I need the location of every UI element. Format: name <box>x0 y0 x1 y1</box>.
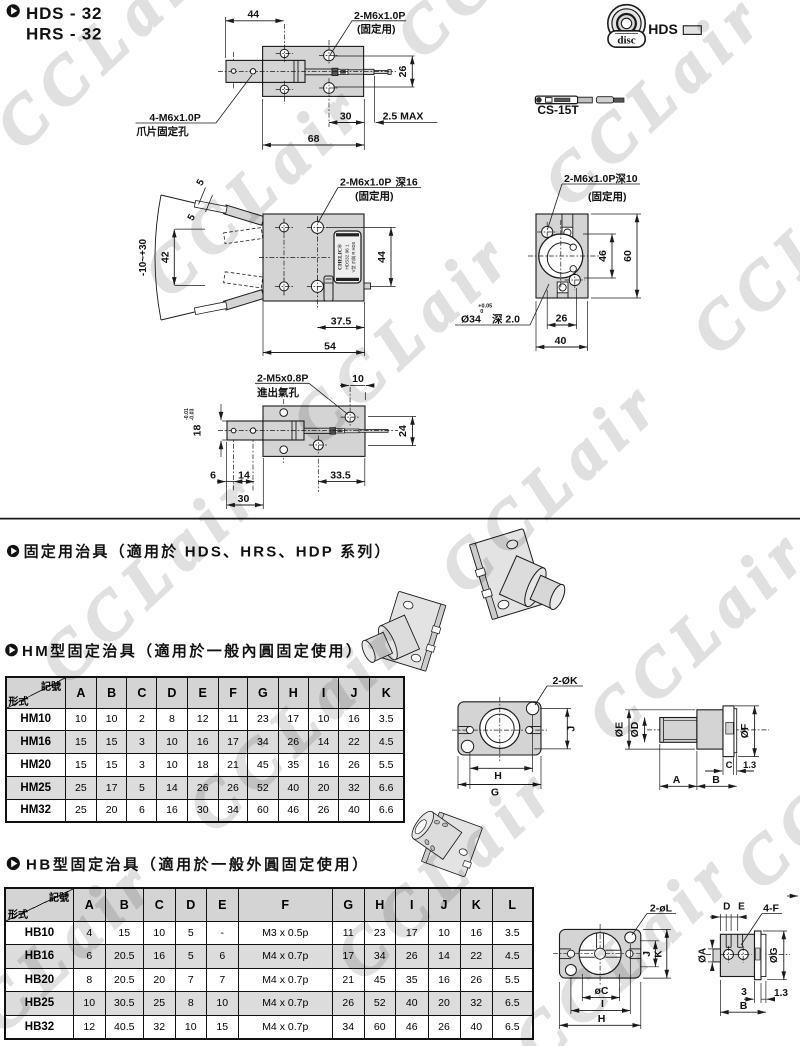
svg-text:(固定用): (固定用) <box>588 190 627 203</box>
svg-text:Ø34: Ø34 <box>461 314 481 326</box>
svg-text:B: B <box>740 1000 748 1012</box>
svg-text:4-M6x1.0P: 4-M6x1.0P <box>149 112 200 124</box>
svg-text:44: 44 <box>376 251 388 263</box>
svg-text:A: A <box>673 774 681 786</box>
svg-text:HM型固定治具（適用於一般內圓固定使用）: HM型固定治具（適用於一般內圓固定使用） <box>22 642 363 660</box>
svg-text:30: 30 <box>340 110 352 122</box>
svg-text:V型 爪與 R HDS: V型 爪與 R HDS <box>350 241 357 272</box>
svg-text:I: I <box>601 998 604 1010</box>
svg-text:14: 14 <box>238 469 250 481</box>
svg-text:33.5: 33.5 <box>330 469 351 481</box>
svg-text:HDS32 96 1: HDS32 96 1 <box>345 244 350 269</box>
svg-text:HB型固定治具（適用於一般外圓固定使用）: HB型固定治具（適用於一般外圓固定使用） <box>26 856 370 874</box>
svg-text:44: 44 <box>247 9 259 21</box>
svg-text:-0.03: -0.03 <box>190 408 196 420</box>
svg-text:øC: øC <box>595 985 609 997</box>
svg-text:42: 42 <box>160 251 172 263</box>
svg-text:J: J <box>642 951 653 957</box>
svg-text:3: 3 <box>741 987 747 998</box>
svg-text:HDS - 32: HDS - 32 <box>26 4 102 23</box>
svg-text:CS-15T: CS-15T <box>537 103 579 117</box>
svg-text:-10~+30: -10~+30 <box>138 238 149 276</box>
svg-text:G: G <box>491 787 499 799</box>
svg-text:固定用治具（適用於 HDS、HRS、HDP 系列）: 固定用治具（適用於 HDS、HRS、HDP 系列） <box>24 543 392 561</box>
svg-text:(固定用): (固定用) <box>355 190 394 203</box>
svg-text:2-M5x0.8P: 2-M5x0.8P <box>257 372 308 384</box>
svg-text:C: C <box>726 760 733 771</box>
svg-text:(固定用): (固定用) <box>357 23 396 36</box>
svg-text:24: 24 <box>397 425 409 437</box>
svg-text:5: 5 <box>186 212 199 223</box>
svg-text:2-M6x1.0P深10: 2-M6x1.0P深10 <box>564 172 638 185</box>
svg-text:D: D <box>723 902 730 913</box>
svg-text:進出氣孔: 進出氣孔 <box>257 386 299 399</box>
svg-text:深 2.0: 深 2.0 <box>492 313 520 326</box>
svg-text:ØA: ØA <box>697 948 708 963</box>
svg-text:爪片固定孔: 爪片固定孔 <box>136 125 189 138</box>
svg-text:ØF: ØF <box>739 723 751 738</box>
svg-text:2-M6x1.0P: 2-M6x1.0P <box>354 10 405 22</box>
svg-text:ØG: ØG <box>769 947 780 963</box>
svg-text:H: H <box>598 1013 606 1025</box>
svg-text:37.5: 37.5 <box>331 315 352 327</box>
svg-text:1.3: 1.3 <box>774 988 788 999</box>
svg-text:5: 5 <box>195 177 208 188</box>
svg-text:10: 10 <box>352 373 364 385</box>
svg-text:2-M6x1.0P: 2-M6x1.0P <box>340 177 391 189</box>
svg-text:E: E <box>738 902 745 913</box>
svg-text:2-øL: 2-øL <box>650 903 673 915</box>
svg-text:CHELIC®: CHELIC® <box>337 244 344 270</box>
svg-text:30: 30 <box>238 493 250 505</box>
svg-text:B: B <box>712 774 720 786</box>
svg-text:2.5 MAX: 2.5 MAX <box>383 110 424 122</box>
svg-text:40: 40 <box>555 335 567 347</box>
svg-text:H: H <box>494 770 502 782</box>
svg-text:26: 26 <box>397 66 409 78</box>
svg-text:深16: 深16 <box>396 176 418 189</box>
svg-text:HRS - 32: HRS - 32 <box>26 24 102 43</box>
svg-text:1.3: 1.3 <box>743 760 756 771</box>
svg-text:54: 54 <box>324 340 336 352</box>
svg-text:0: 0 <box>480 309 483 315</box>
svg-text:18: 18 <box>192 425 204 437</box>
svg-text:disc: disc <box>617 35 635 47</box>
svg-text:26: 26 <box>556 313 568 325</box>
svg-text:4-F: 4-F <box>763 903 779 915</box>
svg-text:HDS: HDS <box>648 21 678 37</box>
svg-text:6: 6 <box>210 469 216 481</box>
svg-text:60: 60 <box>622 250 634 262</box>
svg-text:2-ØK: 2-ØK <box>552 675 578 687</box>
svg-text:68: 68 <box>308 133 320 145</box>
svg-text:ØE: ØE <box>613 722 625 737</box>
svg-text:ØD: ØD <box>629 721 641 737</box>
svg-text:K: K <box>654 950 665 958</box>
svg-text:J: J <box>566 726 578 732</box>
svg-text:46: 46 <box>597 250 609 262</box>
